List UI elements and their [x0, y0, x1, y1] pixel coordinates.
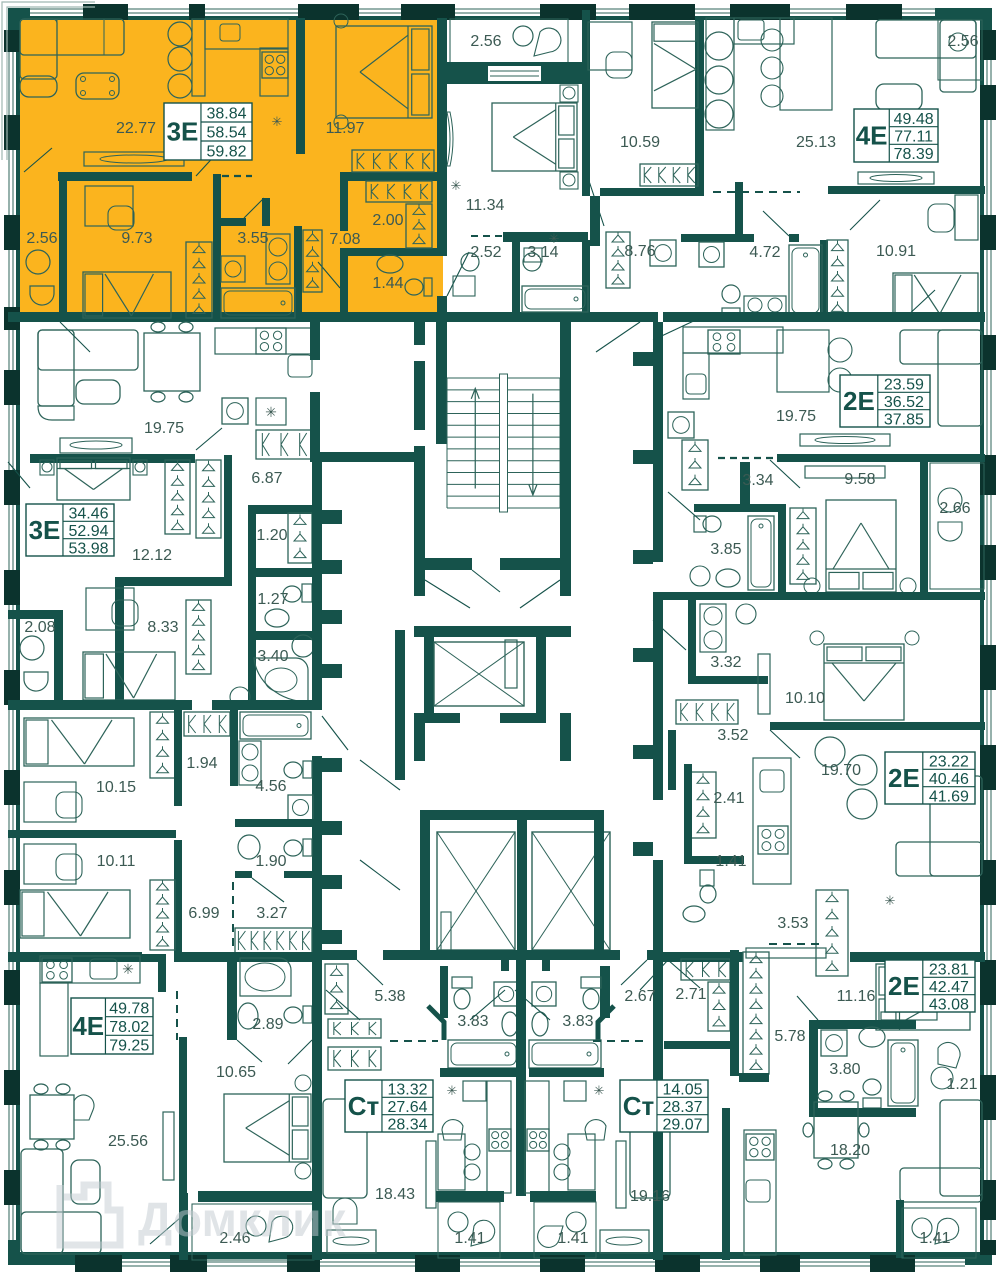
svg-text:8.76: 8.76 — [624, 243, 655, 260]
svg-text:19.75: 19.75 — [144, 420, 184, 437]
svg-text:6.99: 6.99 — [188, 905, 219, 922]
svg-text:1.90: 1.90 — [255, 853, 286, 870]
svg-text:3.52: 3.52 — [717, 727, 748, 744]
svg-text:38.84: 38.84 — [206, 106, 246, 123]
svg-text:✳: ✳ — [451, 178, 462, 193]
svg-text:2.56: 2.56 — [470, 33, 501, 50]
svg-text:19.70: 19.70 — [821, 762, 861, 779]
svg-text:78.39: 78.39 — [894, 146, 934, 163]
svg-text:1.21: 1.21 — [946, 1076, 977, 1093]
svg-text:2.00: 2.00 — [372, 212, 403, 229]
svg-text:7.08: 7.08 — [329, 231, 360, 248]
svg-text:23.81: 23.81 — [929, 962, 969, 979]
svg-text:49.78: 49.78 — [109, 1000, 149, 1017]
svg-text:Домклик: Домклик — [138, 1194, 347, 1247]
svg-text:✳: ✳ — [549, 231, 560, 246]
svg-text:6.87: 6.87 — [251, 470, 282, 487]
svg-text:10.15: 10.15 — [96, 779, 136, 796]
svg-text:2.41: 2.41 — [713, 790, 744, 807]
svg-text:2Е: 2Е — [888, 763, 920, 793]
svg-text:✳: ✳ — [594, 1083, 605, 1098]
svg-text:1.20: 1.20 — [256, 527, 287, 544]
svg-text:19.16: 19.16 — [630, 1188, 670, 1205]
svg-text:19.75: 19.75 — [776, 408, 816, 425]
svg-text:2.71: 2.71 — [675, 986, 706, 1003]
svg-text:43.08: 43.08 — [929, 996, 969, 1013]
svg-text:3.53: 3.53 — [777, 915, 808, 932]
svg-text:25.56: 25.56 — [108, 1133, 148, 1150]
svg-text:1.27: 1.27 — [257, 591, 288, 608]
svg-text:53.98: 53.98 — [68, 540, 108, 557]
svg-text:3.14: 3.14 — [527, 244, 558, 261]
svg-text:3.83: 3.83 — [562, 1013, 593, 1030]
svg-text:23.59: 23.59 — [884, 377, 924, 394]
svg-text:79.25: 79.25 — [109, 1038, 149, 1055]
svg-text:37.85: 37.85 — [884, 411, 924, 428]
svg-text:2.56: 2.56 — [947, 33, 978, 50]
svg-text:2.89: 2.89 — [252, 1016, 283, 1033]
svg-text:28.37: 28.37 — [662, 1099, 702, 1116]
svg-text:3Е: 3Е — [29, 515, 61, 545]
svg-text:2Е: 2Е — [888, 971, 920, 1001]
svg-text:✳: ✳ — [265, 404, 277, 420]
svg-text:2Е: 2Е — [843, 386, 875, 416]
svg-text:✳: ✳ — [885, 893, 896, 908]
svg-text:1.41: 1.41 — [919, 1230, 950, 1247]
svg-text:18.20: 18.20 — [830, 1142, 870, 1159]
svg-text:11.97: 11.97 — [326, 120, 365, 137]
svg-text:3.80: 3.80 — [829, 1061, 860, 1078]
svg-text:1.41: 1.41 — [454, 1230, 485, 1247]
svg-text:4Е: 4Е — [72, 1011, 104, 1041]
svg-text:3.83: 3.83 — [457, 1013, 488, 1030]
svg-text:5.78: 5.78 — [774, 1028, 805, 1045]
svg-text:58.54: 58.54 — [206, 125, 246, 142]
svg-text:49.48: 49.48 — [894, 111, 934, 128]
svg-text:78.02: 78.02 — [109, 1019, 149, 1036]
svg-text:11.34: 11.34 — [466, 197, 505, 214]
svg-text:10.11: 10.11 — [97, 853, 136, 870]
svg-text:4Е: 4Е — [856, 121, 888, 151]
svg-text:3.55: 3.55 — [237, 230, 268, 247]
svg-text:36.52: 36.52 — [884, 394, 924, 411]
svg-text:✳: ✳ — [272, 114, 283, 129]
svg-text:41.69: 41.69 — [929, 788, 969, 805]
svg-text:2.67: 2.67 — [624, 988, 655, 1005]
svg-text:29.07: 29.07 — [662, 1116, 702, 1133]
svg-text:4.56: 4.56 — [255, 778, 286, 795]
svg-text:3.34: 3.34 — [742, 472, 773, 489]
svg-text:59.82: 59.82 — [206, 144, 246, 161]
svg-text:10.59: 10.59 — [620, 134, 660, 151]
svg-text:3.40: 3.40 — [257, 648, 288, 665]
svg-text:1.94: 1.94 — [186, 755, 217, 772]
svg-text:14.05: 14.05 — [662, 1082, 702, 1099]
svg-text:✳: ✳ — [122, 961, 134, 977]
svg-text:2.56: 2.56 — [26, 230, 57, 247]
svg-text:9.58: 9.58 — [844, 471, 875, 488]
svg-text:4.72: 4.72 — [749, 244, 780, 261]
svg-text:1.41: 1.41 — [557, 1230, 588, 1247]
svg-text:✳: ✳ — [447, 1083, 458, 1098]
svg-text:18.43: 18.43 — [375, 1186, 415, 1203]
svg-text:3.27: 3.27 — [256, 905, 287, 922]
svg-text:27.64: 27.64 — [387, 1099, 427, 1116]
svg-text:3.32: 3.32 — [710, 654, 741, 671]
svg-text:13.32: 13.32 — [387, 1082, 427, 1099]
svg-text:52.94: 52.94 — [68, 523, 108, 540]
svg-text:42.47: 42.47 — [929, 979, 969, 996]
svg-text:3Е: 3Е — [167, 117, 199, 147]
svg-text:2.08: 2.08 — [24, 619, 55, 636]
svg-text:10.65: 10.65 — [216, 1064, 256, 1081]
svg-text:3.85: 3.85 — [710, 541, 741, 558]
svg-text:40.46: 40.46 — [929, 771, 969, 788]
svg-text:28.34: 28.34 — [387, 1116, 427, 1133]
svg-text:8.33: 8.33 — [147, 619, 178, 636]
svg-text:9.73: 9.73 — [121, 230, 152, 247]
svg-text:11.16: 11.16 — [837, 988, 876, 1005]
svg-text:12.12: 12.12 — [132, 547, 172, 564]
svg-text:34.46: 34.46 — [68, 506, 108, 523]
svg-text:22.77: 22.77 — [116, 120, 156, 137]
svg-text:1.44: 1.44 — [372, 275, 403, 292]
svg-text:2.52: 2.52 — [470, 244, 501, 261]
svg-text:2.66: 2.66 — [939, 500, 970, 517]
svg-text:10.10: 10.10 — [785, 690, 825, 707]
svg-text:25.13: 25.13 — [796, 134, 836, 151]
svg-text:77.11: 77.11 — [894, 129, 933, 146]
svg-text:1.41: 1.41 — [715, 853, 746, 870]
svg-text:5.38: 5.38 — [374, 988, 405, 1005]
svg-text:Ст: Ст — [348, 1091, 380, 1121]
svg-text:23.22: 23.22 — [929, 754, 969, 771]
svg-text:10.91: 10.91 — [876, 243, 916, 260]
svg-text:Ст: Ст — [623, 1091, 655, 1121]
